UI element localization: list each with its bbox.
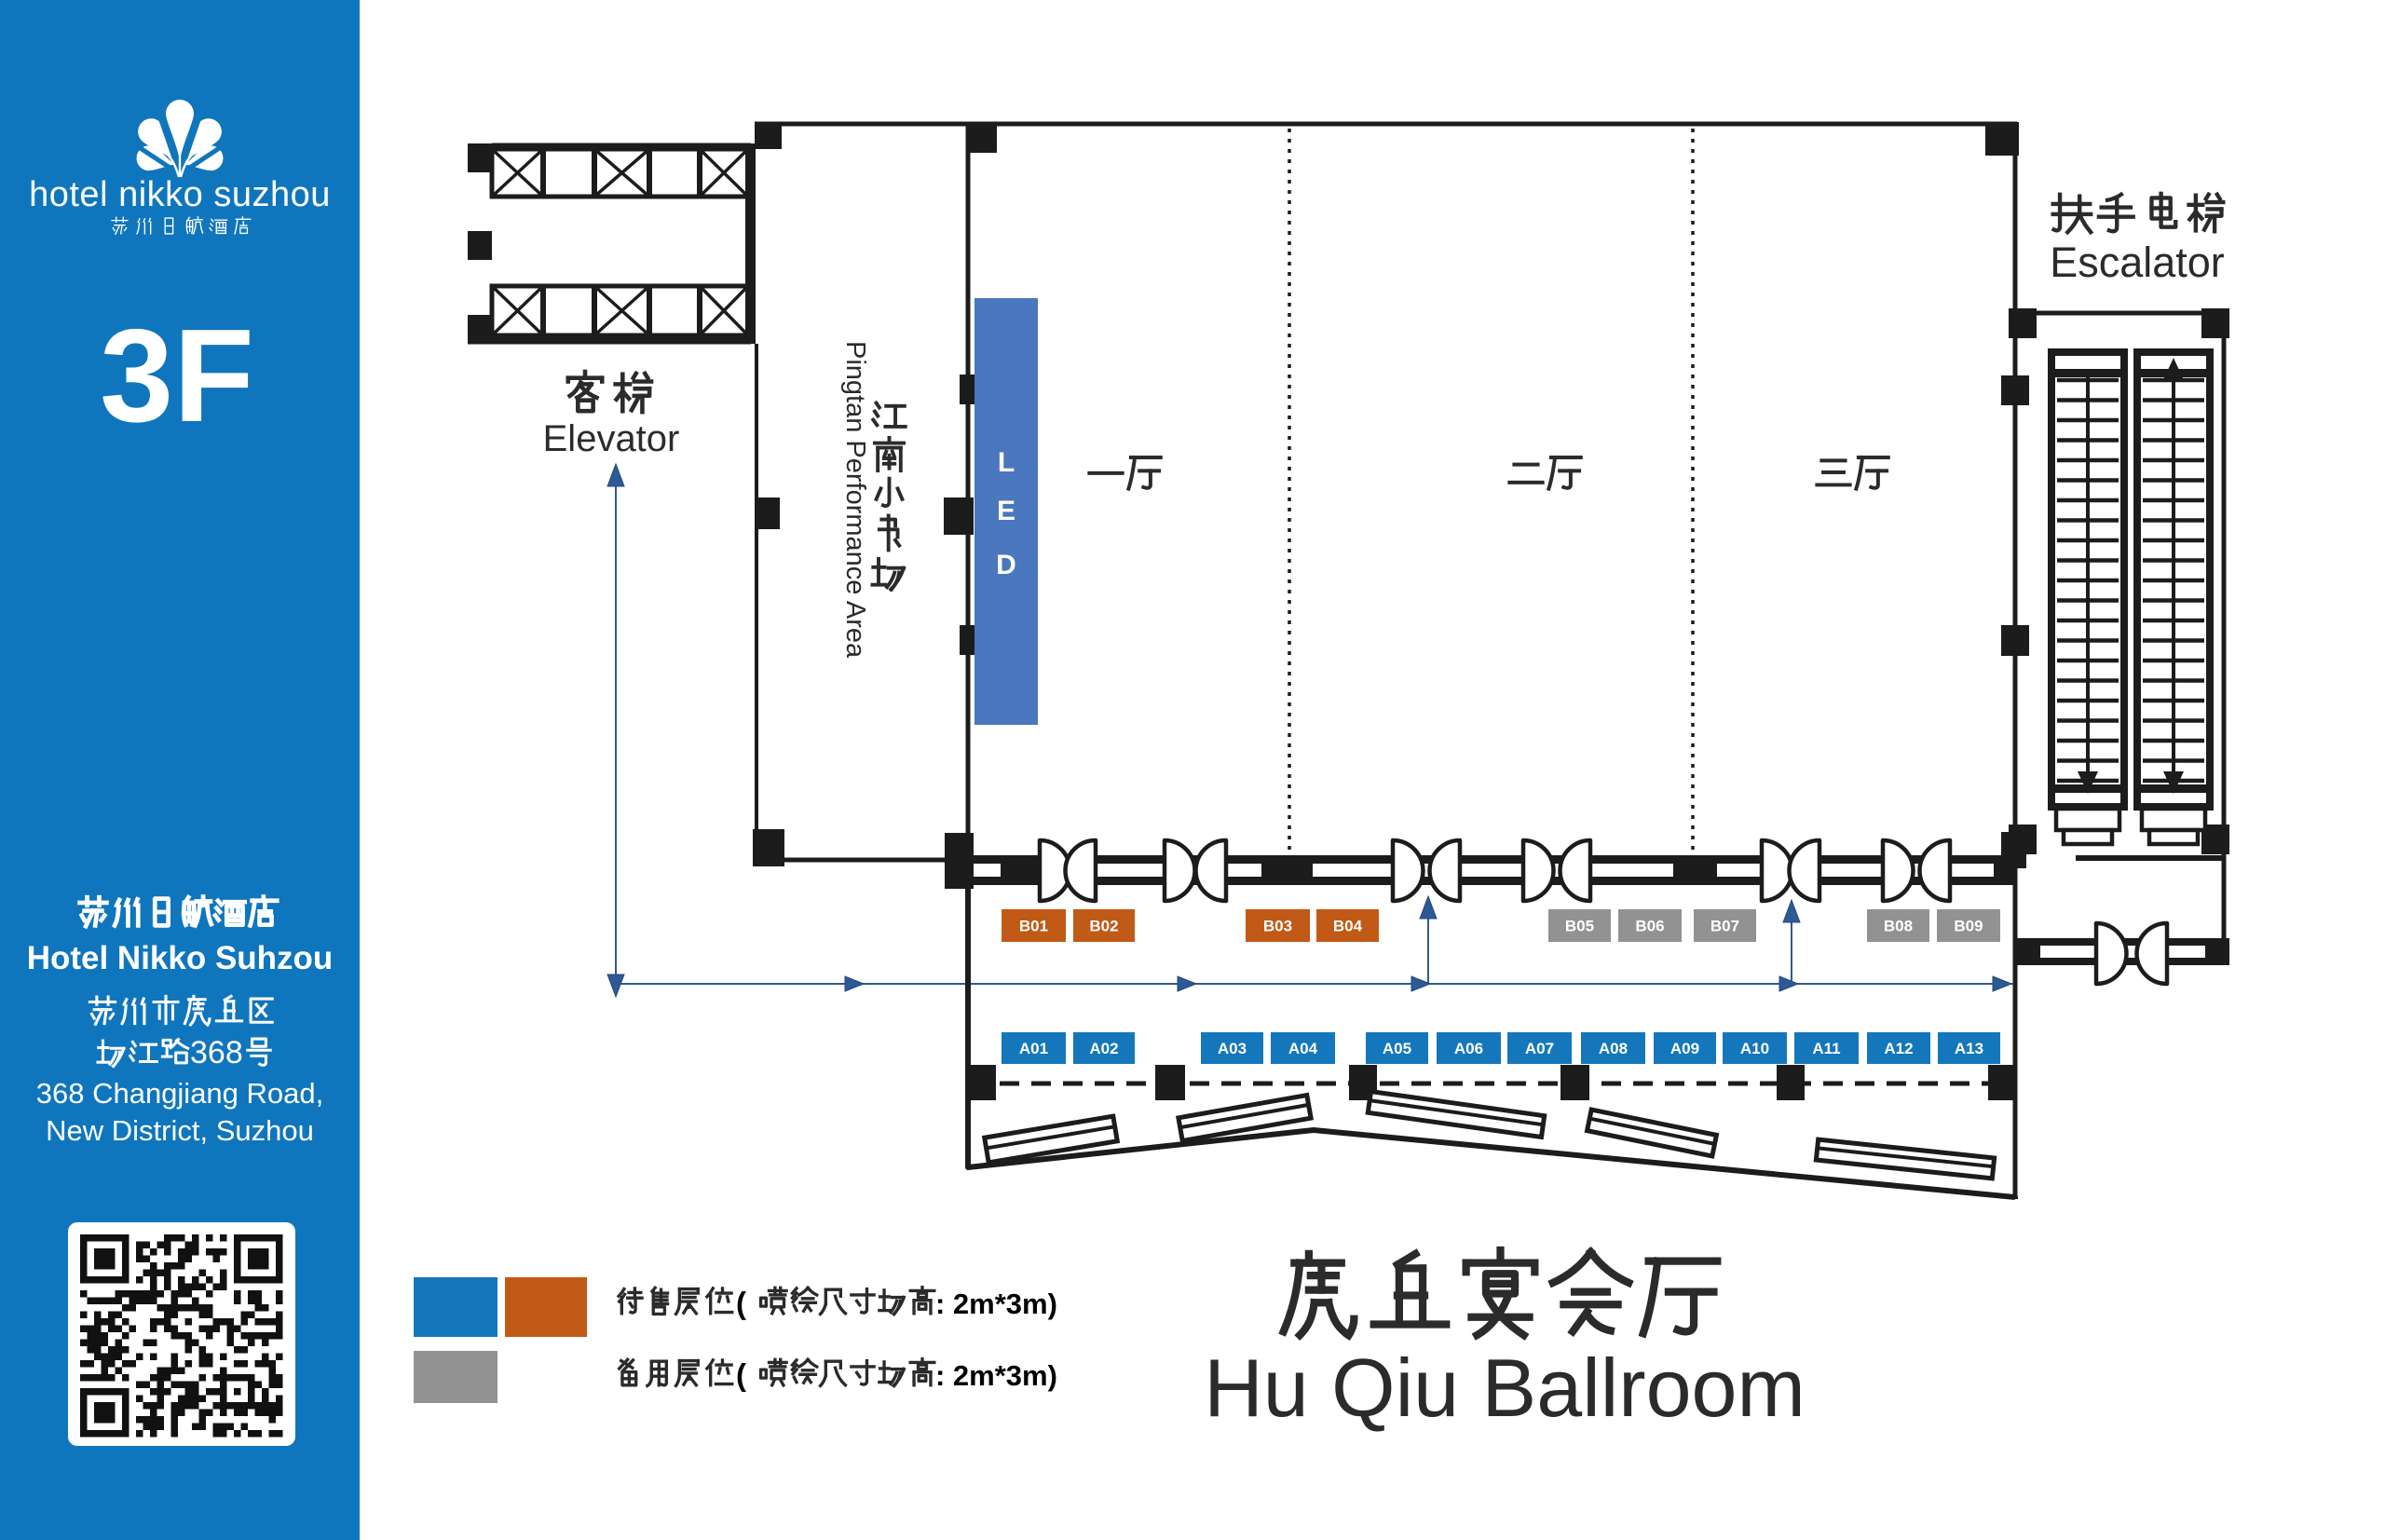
svg-text:Pingtan Performance Area: Pingtan Performance Area xyxy=(840,341,870,659)
svg-text:A02: A02 xyxy=(1089,1040,1118,1057)
svg-text:B02: B02 xyxy=(1089,918,1118,935)
svg-text:B04: B04 xyxy=(1333,918,1363,935)
svg-text:A03: A03 xyxy=(1218,1040,1247,1057)
svg-text:A01: A01 xyxy=(1019,1040,1048,1057)
svg-text:New District, Suzhou: New District, Suzhou xyxy=(46,1114,314,1147)
svg-text:hotel nikko suzhou: hotel nikko suzhou xyxy=(29,175,331,214)
svg-text:B05: B05 xyxy=(1565,918,1594,935)
svg-text:E: E xyxy=(997,496,1015,526)
svg-text:B09: B09 xyxy=(1954,918,1983,935)
svg-text:B03: B03 xyxy=(1263,918,1292,935)
svg-text:Elevator: Elevator xyxy=(543,418,680,459)
svg-text:Hu Qiu Ballroom: Hu Qiu Ballroom xyxy=(1204,1342,1806,1434)
svg-text:B06: B06 xyxy=(1635,918,1664,935)
svg-text:B01: B01 xyxy=(1019,918,1048,935)
svg-text:A07: A07 xyxy=(1525,1040,1554,1057)
svg-text:368 Changjiang Road,: 368 Changjiang Road, xyxy=(36,1077,324,1110)
svg-text:(: ( xyxy=(736,1357,746,1392)
svg-text:A11: A11 xyxy=(1812,1040,1840,1057)
svg-text:368: 368 xyxy=(190,1035,243,1070)
svg-text:(: ( xyxy=(736,1286,746,1320)
svg-text:Hotel Nikko Suhzou: Hotel Nikko Suhzou xyxy=(27,940,334,976)
svg-text:: 2m*3m): : 2m*3m) xyxy=(935,1288,1057,1320)
svg-text:L: L xyxy=(998,447,1015,478)
svg-text:A04: A04 xyxy=(1288,1040,1318,1057)
svg-text:: 2m*3m): : 2m*3m) xyxy=(935,1359,1057,1392)
svg-text:A13: A13 xyxy=(1955,1040,1983,1057)
svg-text:D: D xyxy=(996,550,1016,580)
svg-text:A08: A08 xyxy=(1599,1040,1628,1057)
svg-text:A05: A05 xyxy=(1383,1040,1411,1057)
svg-text:3F: 3F xyxy=(100,302,254,450)
svg-text:A10: A10 xyxy=(1740,1040,1769,1057)
svg-text:B07: B07 xyxy=(1710,918,1739,935)
svg-text:A06: A06 xyxy=(1454,1040,1483,1057)
svg-text:A12: A12 xyxy=(1884,1040,1913,1057)
svg-text:Escalator: Escalator xyxy=(2050,238,2225,286)
svg-text:A09: A09 xyxy=(1670,1040,1699,1057)
svg-text:B08: B08 xyxy=(1884,918,1913,935)
